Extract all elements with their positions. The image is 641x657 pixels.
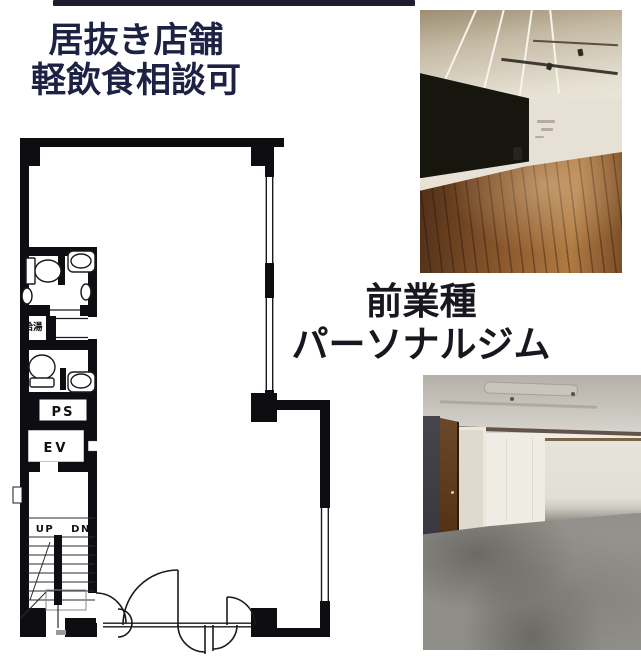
ceiling-light-icon xyxy=(606,386,622,402)
plan-walls xyxy=(20,138,330,637)
photo-interior-wood-floor-room xyxy=(420,10,622,273)
toilet2-bowl-icon xyxy=(29,355,55,379)
toilet1-tank-icon xyxy=(26,258,35,284)
sink2-basin-icon xyxy=(71,374,91,388)
photo-interior-gym-room xyxy=(423,375,641,650)
warm-light-icon xyxy=(594,36,616,58)
ceiling-light-icon xyxy=(497,386,515,404)
plan-windows xyxy=(265,177,330,601)
mirror-wall xyxy=(545,438,641,526)
hot-water-label: 給湯 xyxy=(23,321,43,333)
landing-door-notch xyxy=(13,487,22,503)
floor-plan: 給湯 PS EV UP DN xyxy=(10,130,345,657)
photo2-concrete-floor xyxy=(423,513,641,651)
headline-block: 居抜き店舗 軽飲食相談可 xyxy=(11,22,261,101)
ceiling-light-icon xyxy=(558,381,578,401)
elevator-door-gap xyxy=(40,462,58,472)
sink1-basin-icon xyxy=(71,254,91,268)
entrance-door-arcs xyxy=(96,570,255,654)
door-leaf-icon xyxy=(81,284,91,300)
plan-glass-front xyxy=(103,623,251,627)
property-flyer: 居抜き店舗 軽飲食相談可 xyxy=(0,0,641,657)
caption-line2: パーソナルジム xyxy=(288,324,554,367)
pipe-space-label: PS xyxy=(52,405,75,420)
toilet1-bowl-icon xyxy=(35,260,61,282)
stairs-up-label: UP xyxy=(36,524,54,535)
stairs-down-label: DN xyxy=(71,524,91,535)
cropped-text-remnant-bar xyxy=(53,0,415,6)
headline-line1: 居抜き店舗 xyxy=(11,22,261,62)
toilet2-tank-icon xyxy=(30,378,54,387)
elevator-label: EV xyxy=(44,441,69,456)
caption-line1: 前業種 xyxy=(288,281,554,324)
door-leaf-icon xyxy=(22,288,32,304)
headline-line2: 軽飲食相談可 xyxy=(11,62,261,102)
caption-block: 前業種 パーソナルジム xyxy=(288,281,554,366)
